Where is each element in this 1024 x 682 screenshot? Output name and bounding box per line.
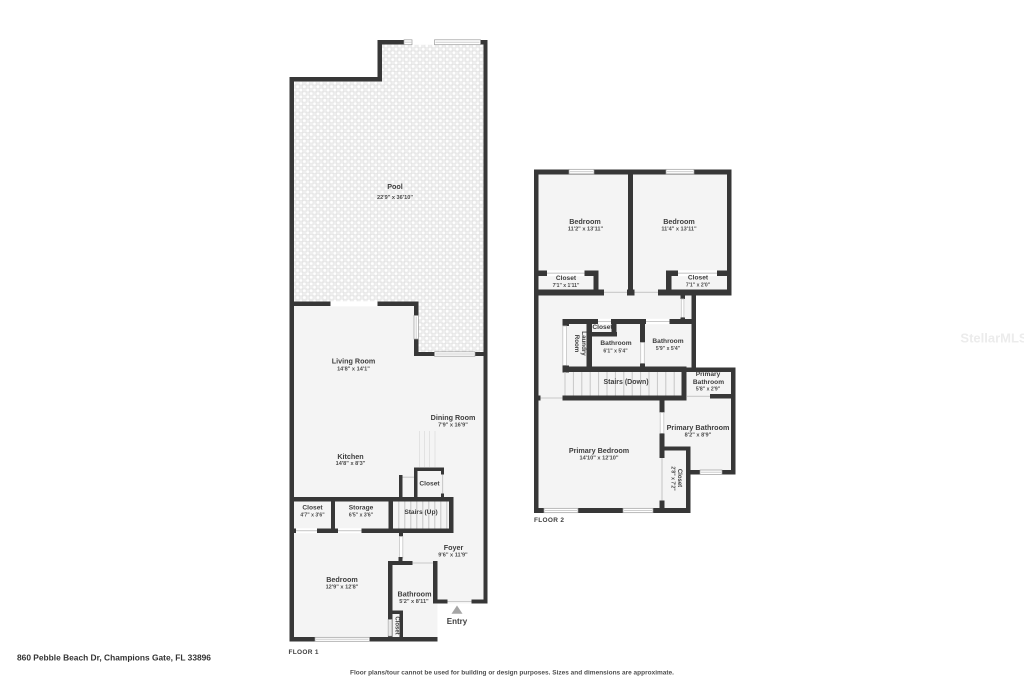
svg-text:Stairs (Up): Stairs (Up) (404, 509, 437, 516)
svg-text:Closet: Closet (676, 469, 682, 487)
svg-text:2'8" x 7'2": 2'8" x 7'2" (670, 466, 676, 491)
svg-text:Kitchen: Kitchen (337, 452, 363, 461)
svg-text:6'1" x 5'4": 6'1" x 5'4" (603, 349, 628, 355)
svg-text:Closet: Closet (419, 481, 440, 488)
svg-text:5'8" x 2'9": 5'8" x 2'9" (696, 387, 721, 393)
svg-text:860 Pebble Beach Dr, Champions: 860 Pebble Beach Dr, Champions Gate, FL … (17, 653, 211, 663)
svg-text:11'4" x 13'11": 11'4" x 13'11" (661, 227, 697, 233)
svg-text:6'5" x 3'6": 6'5" x 3'6" (349, 513, 374, 519)
svg-text:4'7" x 3'6": 4'7" x 3'6" (300, 513, 325, 519)
svg-text:FLOOR 2: FLOOR 2 (534, 517, 564, 524)
svg-text:Bathroom: Bathroom (693, 379, 724, 386)
svg-text:Closet: Closet (592, 324, 613, 331)
svg-text:Laundry: Laundry (580, 331, 587, 356)
svg-text:22'9" x 36'10": 22'9" x 36'10" (377, 195, 413, 201)
svg-text:14'8" x 8'3": 14'8" x 8'3" (336, 461, 366, 467)
svg-text:Bathroom: Bathroom (398, 590, 432, 599)
svg-text:Bedroom: Bedroom (326, 575, 358, 584)
svg-text:Entry: Entry (447, 617, 468, 626)
svg-text:Closet: Closet (688, 275, 709, 282)
svg-text:Foyer: Foyer (444, 543, 464, 552)
svg-text:7'9" x 16'9": 7'9" x 16'9" (438, 423, 468, 429)
svg-text:Pool: Pool (387, 182, 403, 191)
svg-text:FLOOR 1: FLOOR 1 (289, 649, 319, 656)
svg-text:12'9" x 12'8": 12'9" x 12'8" (326, 585, 359, 591)
svg-text:14'8" x 14'1": 14'8" x 14'1" (337, 367, 370, 373)
svg-text:7'1" x 2'0": 7'1" x 2'0" (686, 283, 711, 289)
svg-text:Bedroom: Bedroom (569, 217, 601, 226)
svg-text:8'2" x 8'9": 8'2" x 8'9" (685, 433, 712, 439)
svg-text:Closet: Closet (302, 505, 323, 512)
svg-text:Primary Bedroom: Primary Bedroom (569, 446, 629, 455)
svg-text:Primary Bathroom: Primary Bathroom (667, 423, 730, 432)
svg-text:Closet: Closet (556, 275, 577, 282)
svg-text:Dining Room: Dining Room (431, 413, 476, 422)
svg-text:Bathroom: Bathroom (652, 338, 683, 345)
svg-text:Floor plans/tour cannot be use: Floor plans/tour cannot be used for buil… (350, 669, 674, 676)
svg-text:Bedroom: Bedroom (663, 217, 695, 226)
svg-text:Room: Room (573, 335, 580, 353)
svg-text:Closet: Closet (394, 616, 400, 634)
svg-text:5'9" x 5'4": 5'9" x 5'4" (656, 346, 681, 352)
svg-text:Living Room: Living Room (332, 357, 376, 366)
svg-text:7'1" x 1'11": 7'1" x 1'11" (553, 283, 580, 289)
svg-text:StellarMLS: StellarMLS (960, 331, 1024, 346)
svg-text:Storage: Storage (349, 505, 374, 512)
svg-text:11'2" x 13'11": 11'2" x 13'11" (568, 227, 604, 233)
svg-text:Stairs (Down): Stairs (Down) (603, 379, 648, 386)
svg-text:Primary: Primary (696, 371, 721, 378)
svg-text:5'2" x 8'11": 5'2" x 8'11" (399, 599, 429, 605)
svg-text:14'10" x 12'10": 14'10" x 12'10" (579, 456, 618, 462)
svg-text:Bathroom: Bathroom (600, 340, 631, 347)
svg-text:9'6" x 11'9": 9'6" x 11'9" (438, 553, 468, 559)
